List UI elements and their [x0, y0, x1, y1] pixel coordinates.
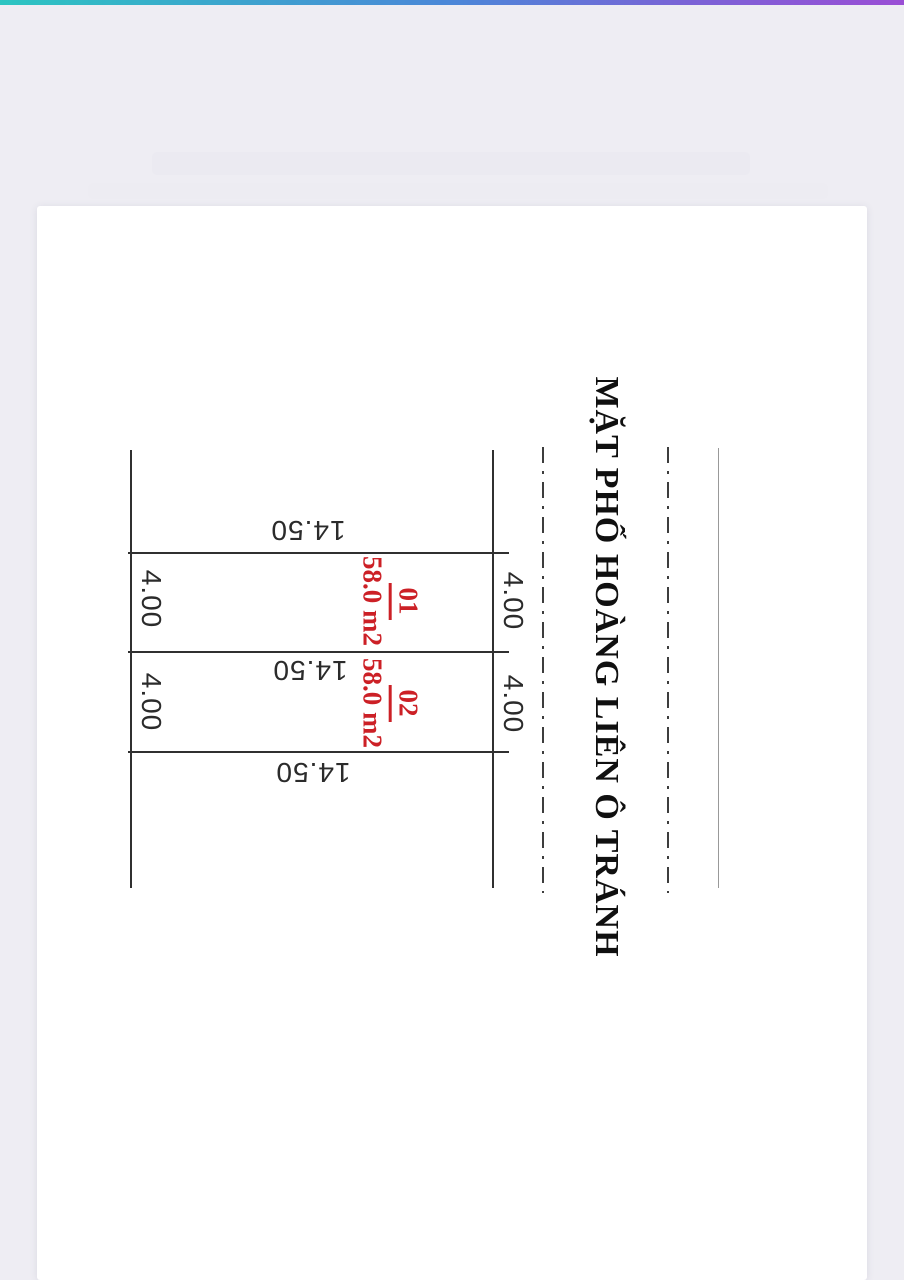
depth-dimension-label: 14.50 — [272, 656, 347, 684]
road-centerline-dashed — [542, 447, 544, 893]
plot-02-area: 58.0 m2 — [357, 658, 387, 748]
road-edge-line — [718, 448, 719, 888]
background-artifact-band — [88, 183, 828, 199]
depth-dimension-label: 14.50 — [270, 516, 345, 544]
road-centerline-dashed — [667, 447, 669, 893]
frontage-dimension-label: 4.00 — [499, 572, 527, 631]
right-boundary-line — [492, 450, 494, 888]
plot-edge-line-top — [128, 552, 509, 554]
street-name-label: MẶT PHỐ HOÀNG LIÊN Ô TRÁNH — [587, 376, 625, 957]
top-accent-gradient-bar — [0, 0, 904, 5]
depth-dimension-label: 14.50 — [275, 758, 350, 786]
plot-edge-line-middle — [128, 651, 509, 653]
plot-01-area: 58.0 m2 — [357, 556, 387, 646]
screenshot-stage: 14.50 14.50 14.50 4.00 4.00 4.00 4.00 01… — [0, 0, 904, 1280]
frontage-dimension-label: 4.00 — [137, 570, 165, 629]
frontage-dimension-label: 4.00 — [499, 675, 527, 734]
plot-edge-line-bottom — [128, 751, 509, 753]
plot-01-number: 01 — [389, 583, 423, 620]
document-page — [37, 206, 867, 1280]
plot-01-label: 01 58.0 m2 — [357, 556, 422, 646]
background-artifact-band — [152, 152, 750, 175]
plot-02-label: 02 58.0 m2 — [357, 658, 422, 748]
frontage-dimension-label: 4.00 — [137, 673, 165, 732]
left-boundary-line — [130, 450, 132, 888]
plot-02-number: 02 — [389, 685, 423, 722]
